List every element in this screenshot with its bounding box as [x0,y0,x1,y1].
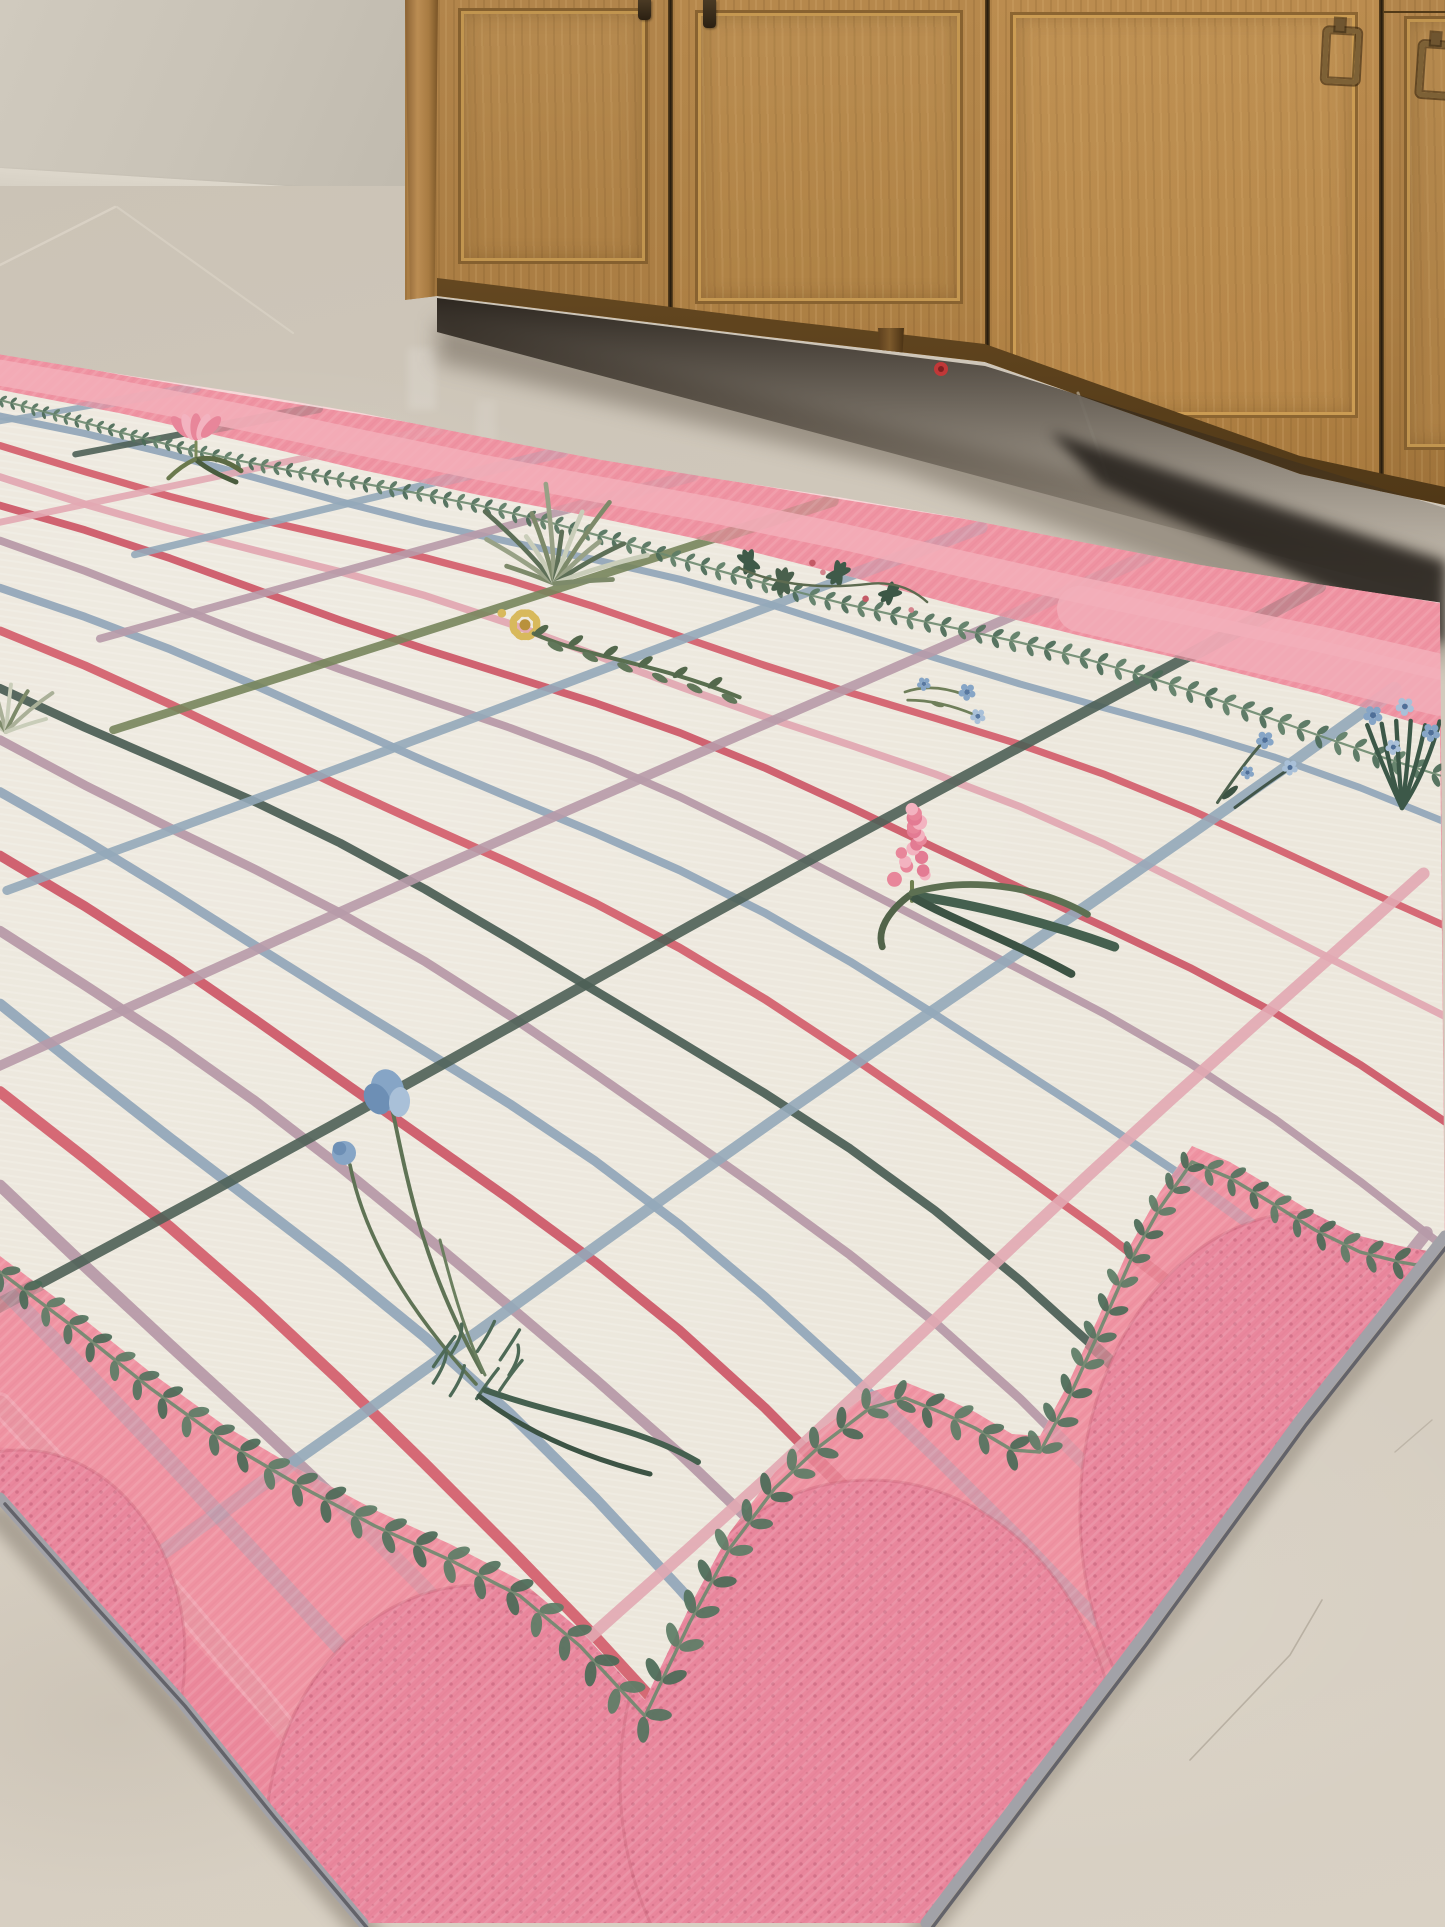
brass-ring-pull-1 [1322,27,1362,85]
door-handle-right-icon [703,0,716,28]
door-2-panel [695,10,963,304]
room-scene [0,0,1445,1927]
brass-ring-pull-2 [1416,41,1445,99]
cabinet-front-post [405,0,438,348]
door-seam-3 [1379,0,1384,520]
door-1-panel [458,8,648,264]
door-3-panel [1010,12,1358,418]
door-handle-left-icon [638,0,651,20]
drawer-seam [1384,11,1445,13]
